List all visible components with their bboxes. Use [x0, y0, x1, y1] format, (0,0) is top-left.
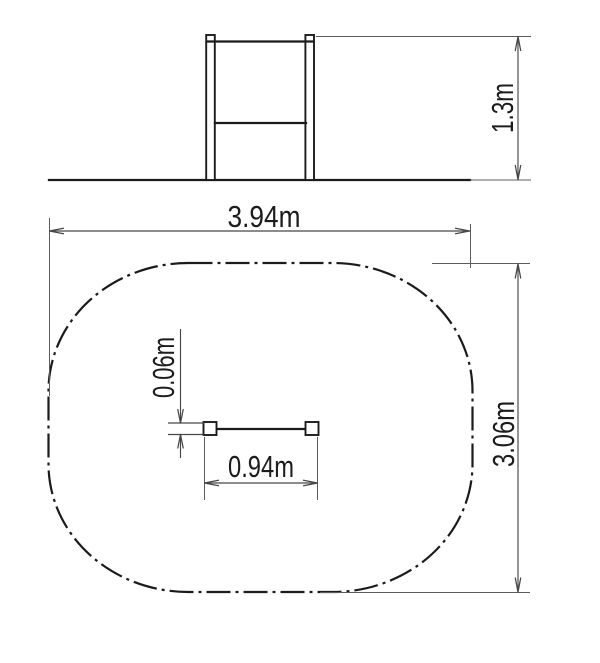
left-post-front	[206, 35, 215, 180]
height-dimension-label: 1.3m	[485, 83, 520, 133]
safety-zone-outline	[49, 263, 473, 592]
zone-depth-dimension: 3.06m	[320, 264, 530, 593]
right-post-front	[305, 35, 314, 180]
plan-view	[49, 263, 473, 592]
bar-thickness-dimension-label: 0.06m	[146, 337, 181, 398]
bar-length-dimension: 0.94m	[205, 437, 318, 500]
zone-width-dimension: 3.94m	[50, 199, 471, 396]
zone-depth-dimension-label: 3.06m	[486, 401, 521, 467]
zone-width-dimension-label: 3.94m	[228, 199, 301, 234]
left-post-plan	[204, 422, 217, 435]
bar-length-dimension-label: 0.94m	[228, 449, 294, 484]
technical-drawing-page: 1.3m 3.94m 3.06m	[0, 0, 600, 663]
bar-thickness-dimension: 0.06m	[146, 329, 204, 458]
height-dimension: 1.3m	[316, 37, 531, 181]
equipment-dimension-drawing: 1.3m 3.94m 3.06m	[0, 0, 600, 663]
front-view	[49, 35, 470, 180]
right-post-plan	[306, 422, 319, 435]
